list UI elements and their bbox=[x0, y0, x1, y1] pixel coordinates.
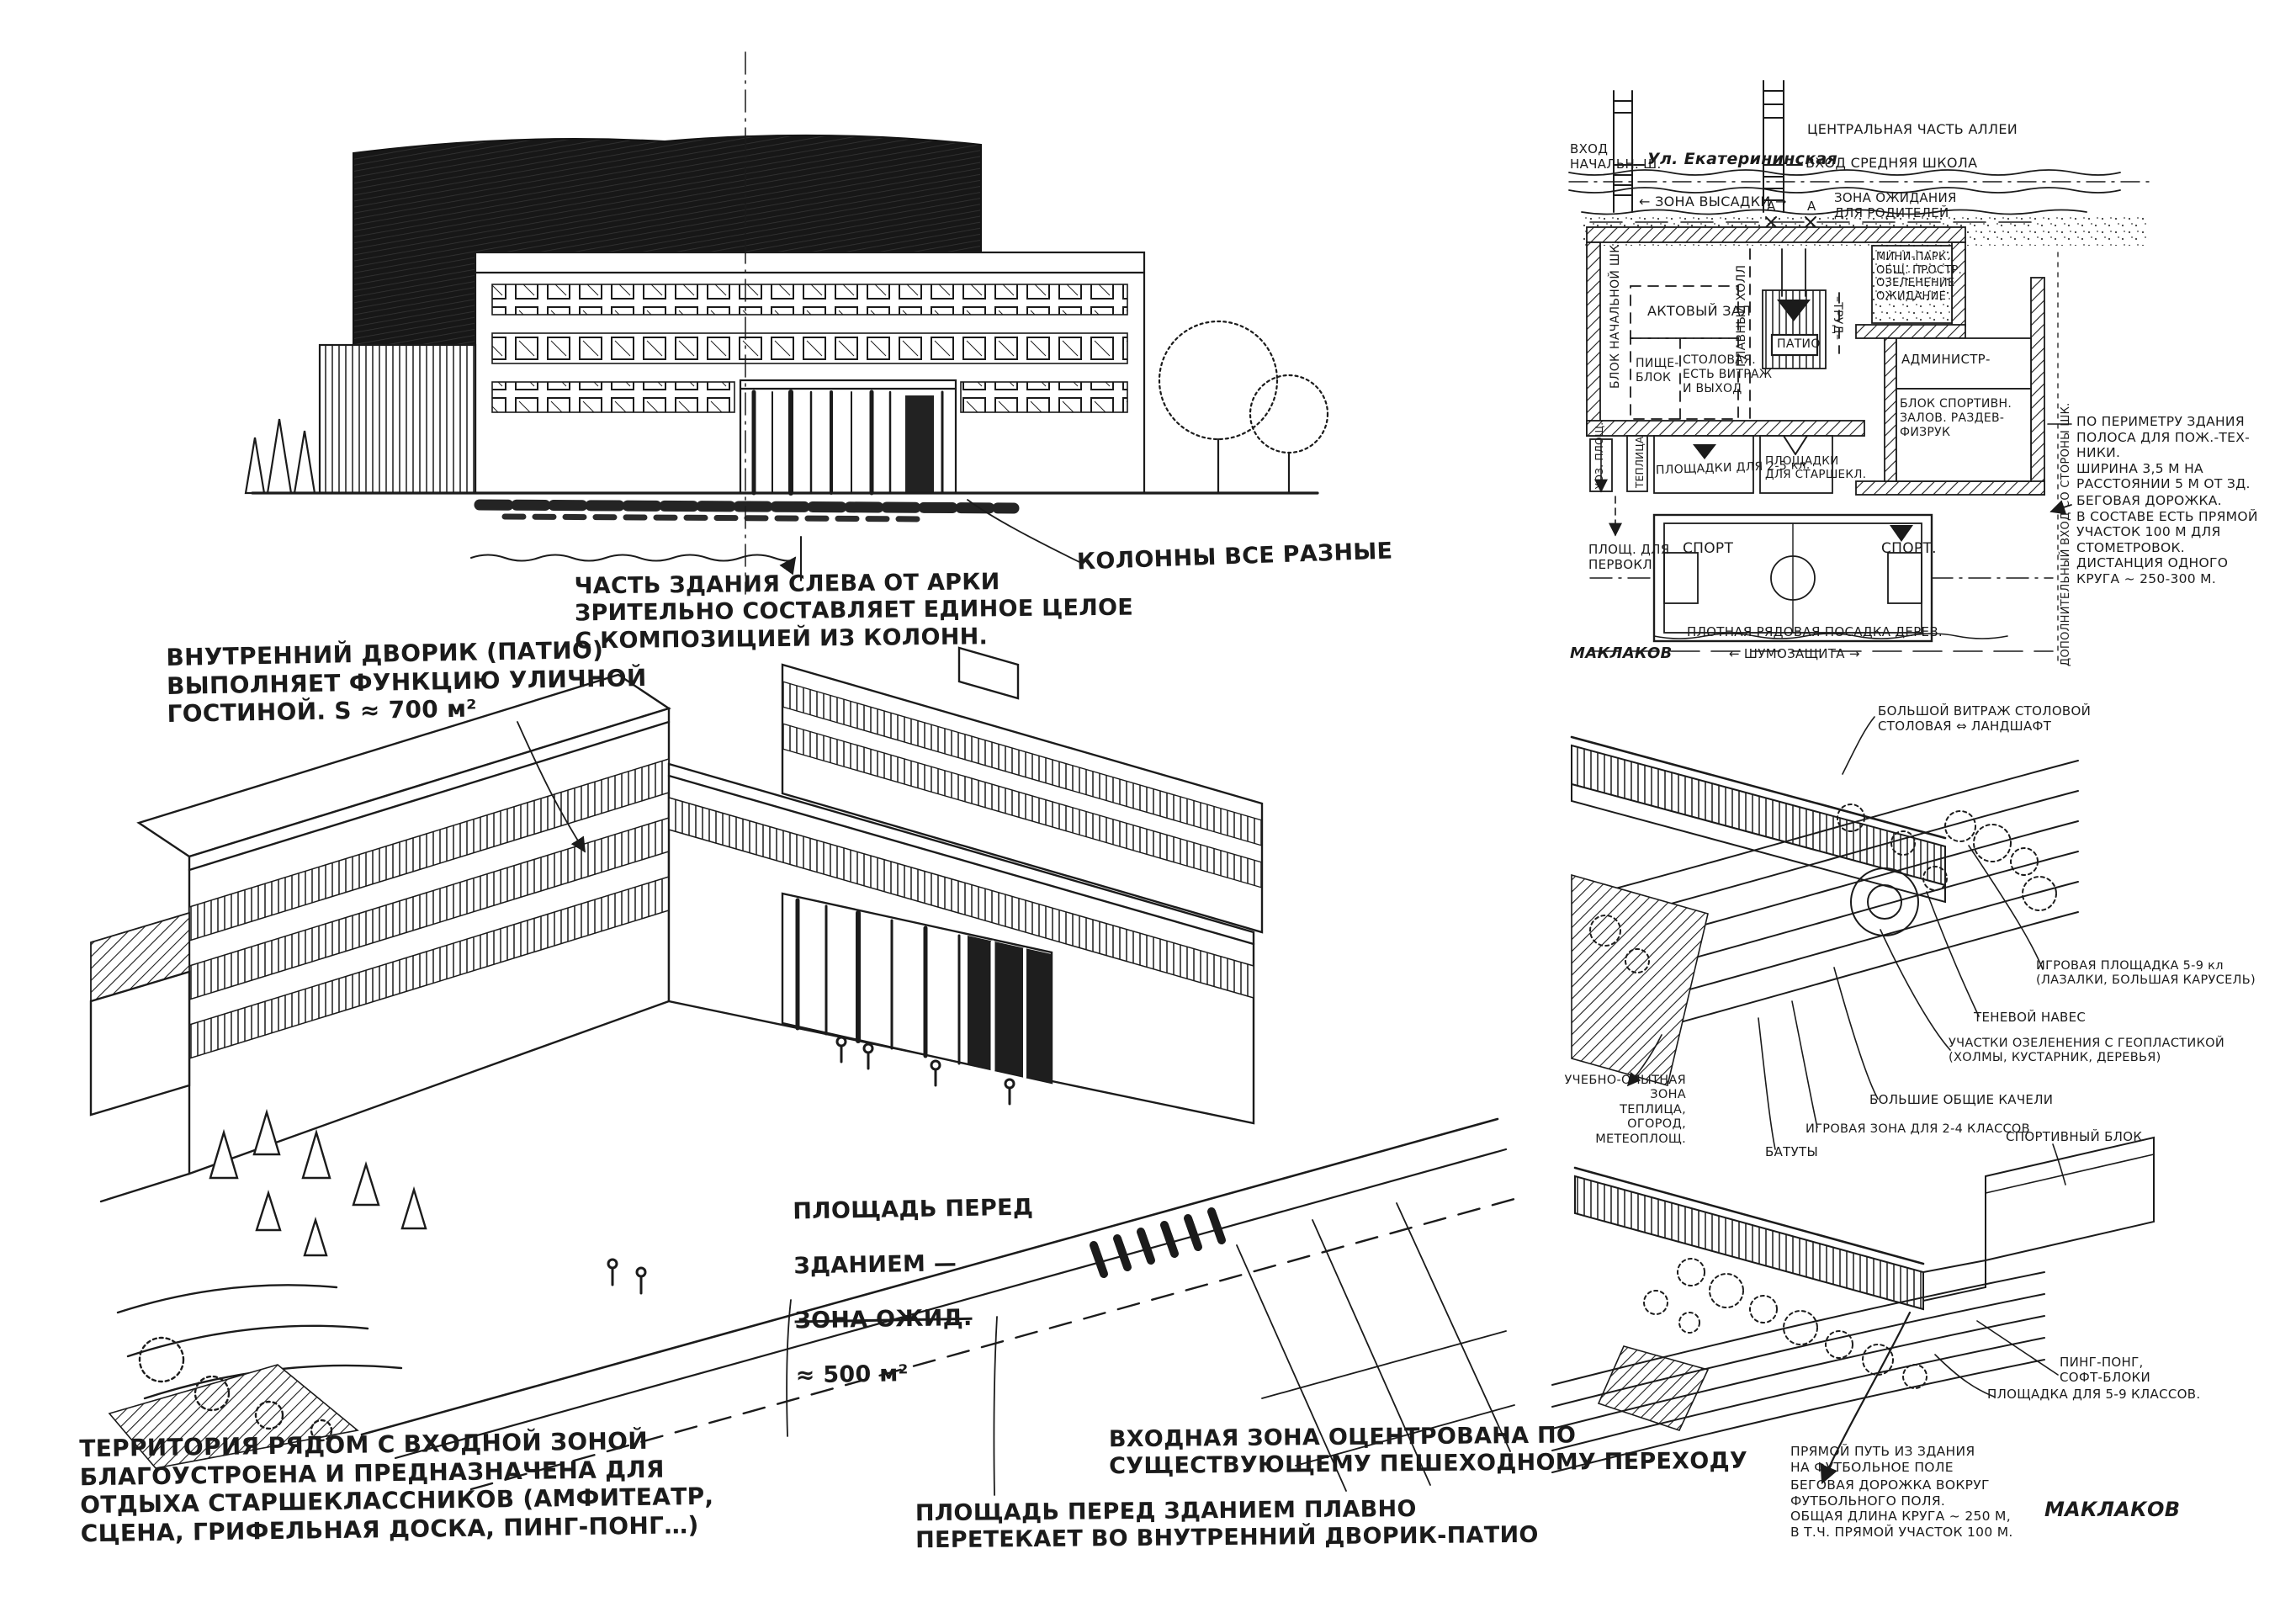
plan-waiting-zone-parents: ЗОНА ОЖИДАНИЯ ДЛЯ РОДИТЕЛЕЙ bbox=[1834, 190, 1957, 220]
plan-marker-a-right: А bbox=[1807, 199, 1816, 214]
plan-mini-park: МИНИ-ПАРК. ОБЩ. ПРОСТР. ОЗЕЛЕНЕНИЕ ОЖИДА… bbox=[1876, 251, 1962, 303]
plan-entry-primary-school: ВХОД НАЧАЛЬН. Ш. bbox=[1570, 141, 1662, 172]
plan-primary-school-block: БЛОК НАЧАЛЬНОЙ ШК. bbox=[1609, 241, 1623, 389]
plan-sport-halls-block: БЛОК СПОРТИВН. ЗАЛОВ. РАЗДЕВ- ФИЗРУК bbox=[1900, 397, 2012, 439]
sport-ping-pong: ПИНГ-ПОНГ, СОФТ-БЛОКИ bbox=[2060, 1355, 2150, 1385]
plan-main-hall: ГЛАВНЫЙ ХОЛЛ bbox=[1735, 265, 1749, 367]
plan-alley-label: ЦЕНТРАЛЬНАЯ ЧАСТЬ АЛЛЕИ bbox=[1807, 121, 2018, 137]
note-plaza-line1: ПЛОЩАДЬ ПЕРЕД bbox=[793, 1195, 1033, 1226]
plan-admin-block: АДМИНИСТР- bbox=[1901, 352, 1991, 367]
plan-food-block: ПИЩЕ- БЛОК bbox=[1636, 357, 1679, 385]
note-arch-composition: ЧАСТЬ ЗДАНИЯ СЛЕВА ОТ АРКИ ЗРИТЕЛЬНО СОС… bbox=[575, 568, 1134, 655]
courtyard-trampolines: БАТУТЫ bbox=[1765, 1144, 1818, 1159]
note-plaza-line2: ЗДАНИЕМ — bbox=[793, 1249, 1034, 1281]
note-plaza-line4: ≈ 500 м² bbox=[795, 1358, 1036, 1389]
sheet-linework bbox=[0, 0, 2296, 1623]
plan-sport-left: СПОРТ bbox=[1683, 540, 1733, 557]
plan-dropoff-zone: ← ЗОНА ВЫСАДКИ → bbox=[1639, 194, 1787, 210]
sheet-signature: МАКЛАКОВ bbox=[2044, 1498, 2180, 1522]
elevation-drawing bbox=[246, 52, 1328, 594]
plan-running-track-note: БЕГОВАЯ ДОРОЖКА. В СОСТАВЕ ЕСТЬ ПРЯМОЙ У… bbox=[2076, 493, 2258, 587]
plan-trud-block: –ТРУД– bbox=[1830, 296, 1844, 340]
plan-fire-lane-note: ПО ПЕРИМЕТРУ ЗДАНИЯ ПОЛОСА ДЛЯ ПОЖ.-ТЕХ-… bbox=[2076, 414, 2251, 492]
plan-canteen: СТОЛОВАЯ. ЕСТЬ ВИТРАЖ И ВЫХОД bbox=[1683, 353, 1772, 395]
courtyard-vitrage-note: БОЛЬШОЙ ВИТРАЖ СТОЛОВОЙ СТОЛОВАЯ ⇔ ЛАНДШ… bbox=[1878, 703, 2091, 734]
sketch-sheet: ЧАСТЬ ЗДАНИЯ СЛЕВА ОТ АРКИ ЗРИТЕЛЬНО СОС… bbox=[0, 0, 2296, 1623]
courtyard-swings: БОЛЬШИЕ ОБЩИЕ КАЧЕЛИ bbox=[1869, 1092, 2053, 1107]
note-entrance-zone: ВХОДНАЯ ЗОНА ОЦЕНТРОВАНА ПО СУЩЕСТВУЮЩЕМ… bbox=[1109, 1421, 1747, 1481]
sport-direct-path-note: ПРЯМОЙ ПУТЬ ИЗ ЗДАНИЯ НА ФУТБОЛЬНОЕ ПОЛЕ bbox=[1790, 1444, 1975, 1475]
plan-noise-shield: ← ШУМОЗАЩИТА → bbox=[1729, 646, 1860, 661]
note-plaza-area: ПЛОЩАДЬ ПЕРЕД ЗДАНИЕМ — ЗОНА ОЖИД. ≈ 500… bbox=[792, 1168, 1037, 1417]
plan-extra-entry-note: ДОПОЛНИТЕЛЬНЫЙ ВХОД СО СТОРОНЫ ШК. bbox=[2060, 402, 2073, 666]
note-inner-patio: ВНУТРЕННИЙ ДВОРИК (ПАТИО) ВЫПОЛНЯЕТ ФУНК… bbox=[166, 635, 647, 729]
plan-grounds-first-grade: ПЛОЩ. ДЛЯ ПЕРВОКЛ. bbox=[1588, 542, 1669, 572]
plan-sport-right: СПОРТ. bbox=[1881, 540, 1937, 557]
courtyard-play-zone-2-4: ИГРОВАЯ ЗОНА ДЛЯ 2-4 КЛАССОВ bbox=[1806, 1122, 2030, 1137]
plan-marker-a-left: А bbox=[1767, 199, 1776, 214]
note-plaza-line3-struck: ЗОНА ОЖИД. bbox=[794, 1303, 1035, 1334]
plan-patio: ПАТИО bbox=[1777, 337, 1821, 352]
note-territory-seniors: ТЕРРИТОРИЯ РЯДОМ С ВХОДНОЙ ЗОНОЙ БЛАГОУС… bbox=[79, 1426, 714, 1548]
plan-greenhouse: ТЕПЛИЦА bbox=[1634, 436, 1646, 488]
courtyard-experimental-zone: УЧЕБНО-ОПЫТНАЯ ЗОНА ТЕПЛИЦА, ОГОРОД, МЕТ… bbox=[1550, 1074, 1686, 1147]
courtyard-shade-canopy: ТЕНЕВОЙ НАВЕС bbox=[1974, 1010, 2086, 1025]
sport-track-note: БЕГОВАЯ ДОРОЖКА ВОКРУГ ФУТБОЛЬНОГО ПОЛЯ.… bbox=[1790, 1477, 2013, 1540]
courtyard-greenery-note: УЧАСТКИ ОЗЕЛЕНЕНИЯ С ГЕОПЛАСТИКОЙ (ХОЛМЫ… bbox=[1949, 1037, 2224, 1066]
courtyard-playground-5-9: ИГРОВАЯ ПЛОЩАДКА 5-9 кл (ЛАЗАЛКИ, БОЛЬША… bbox=[2036, 959, 2256, 989]
plan-signature: МАКЛАКОВ bbox=[1570, 644, 1673, 663]
plan-tree-row: ПЛОТНАЯ РЯДОВАЯ ПОСАДКА ДЕРЕВ. bbox=[1687, 624, 1943, 639]
note-plaza-flows-to-patio: ПЛОЩАДЬ ПЕРЕД ЗДАНИЕМ ПЛАВНО ПЕРЕТЕКАЕТ … bbox=[915, 1495, 1539, 1555]
plan-grounds-senior: ПЛОЩАДКИ ДЛЯ СТАРШЕКЛ. bbox=[1765, 454, 1866, 481]
sport-grounds-5-9: ПЛОЩАДКА ДЛЯ 5-9 КЛАССОВ. bbox=[1987, 1387, 2200, 1402]
plan-hoz-area: ХОЗ. ПЛОЩ. bbox=[1593, 422, 1605, 490]
plan-entry-secondary-school: ВХОД СРЕДНЯЯ ШКОЛА bbox=[1806, 155, 1977, 171]
sport-block-label: СПОРТИВНЫЙ БЛОК bbox=[2006, 1129, 2142, 1144]
